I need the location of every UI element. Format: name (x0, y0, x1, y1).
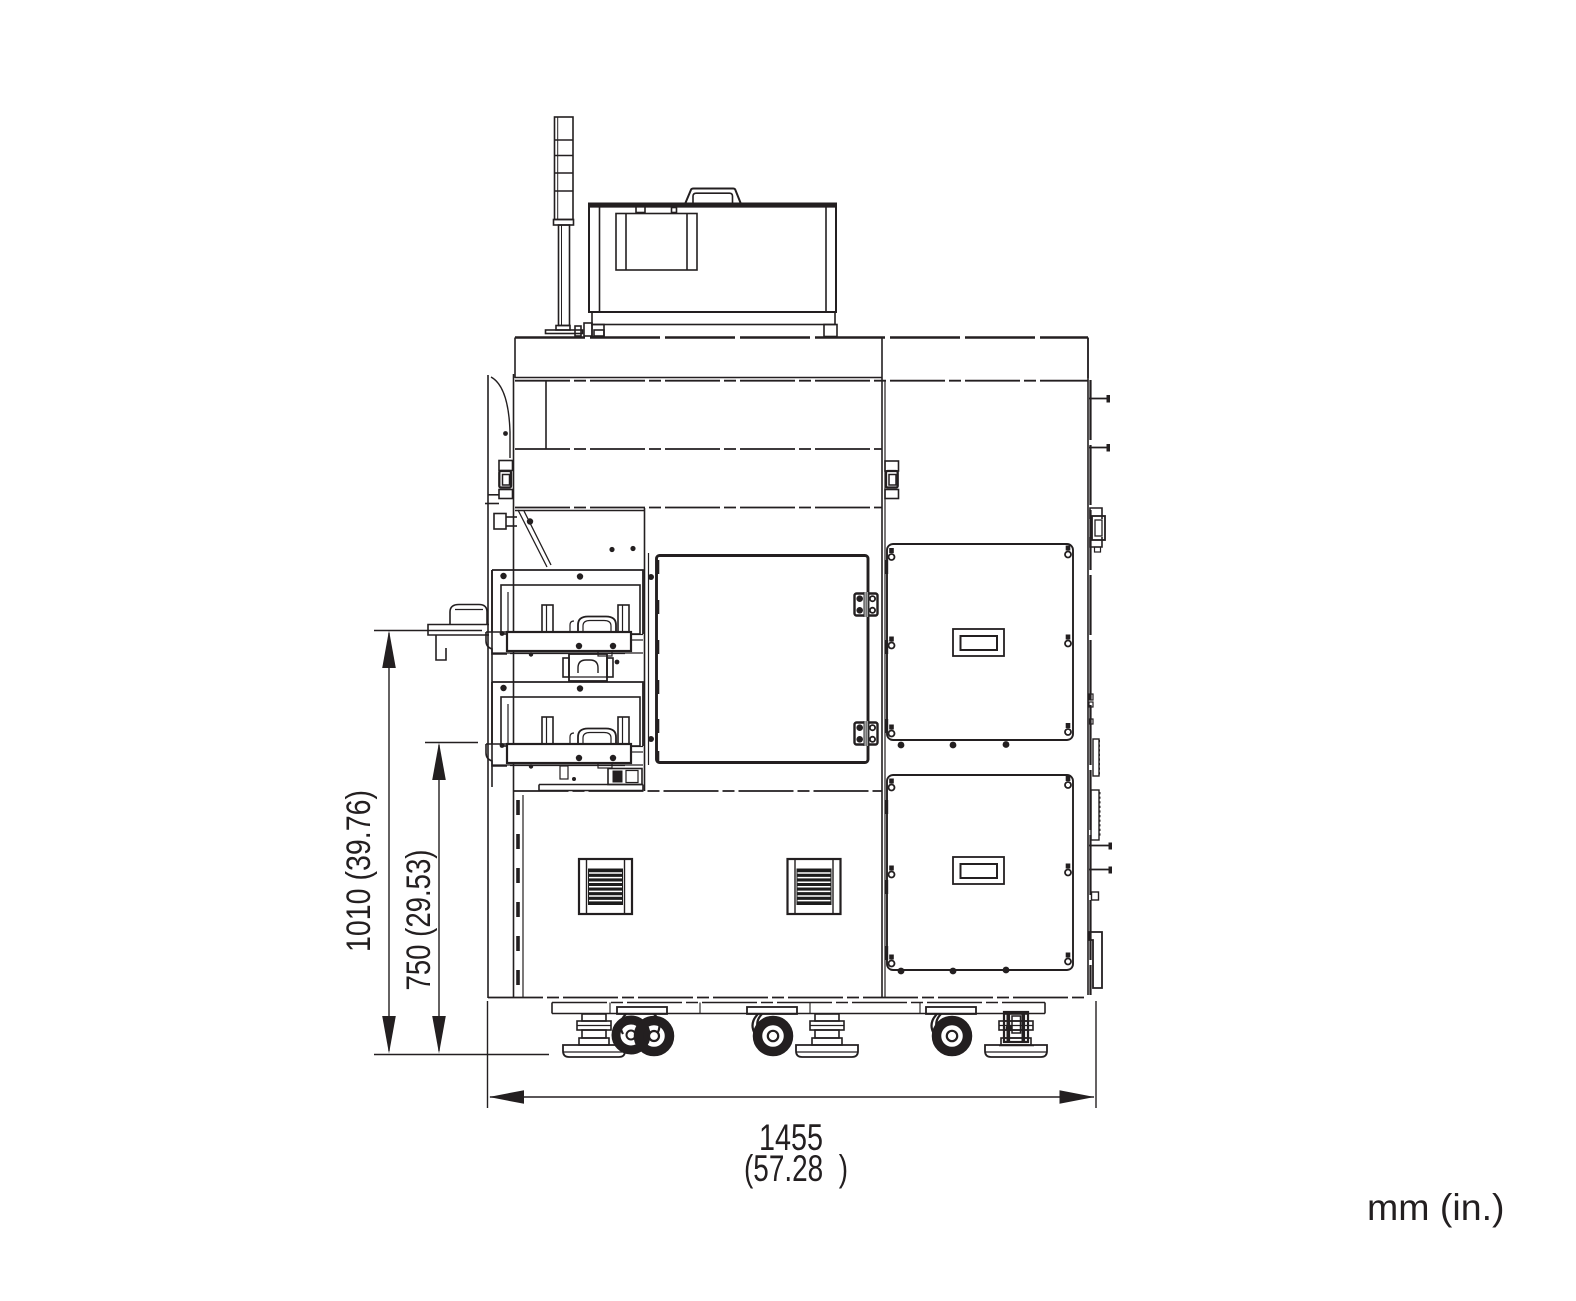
svg-text:mm (in.): mm (in.) (1367, 1186, 1504, 1228)
svg-text:(57.28 ): (57.28 ) (744, 1148, 848, 1189)
svg-text:1010 (39.76): 1010 (39.76) (340, 790, 378, 952)
svg-text:750 (29.53): 750 (29.53) (400, 850, 438, 991)
